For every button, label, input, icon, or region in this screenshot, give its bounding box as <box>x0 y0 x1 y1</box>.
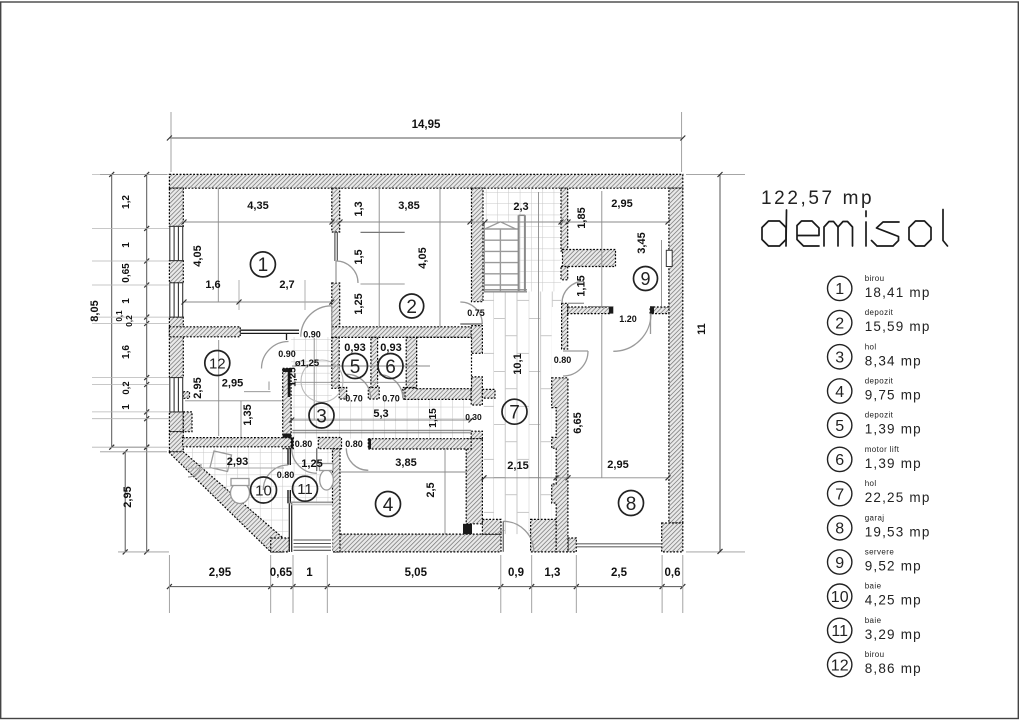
svg-text:4: 4 <box>835 384 844 401</box>
svg-text:8: 8 <box>626 494 637 515</box>
svg-text:1,3: 1,3 <box>353 201 365 216</box>
svg-text:depozit: depozit <box>865 411 894 420</box>
svg-text:2,5: 2,5 <box>425 482 437 497</box>
svg-text:0,65: 0,65 <box>121 263 132 283</box>
svg-text:5: 5 <box>350 357 361 378</box>
svg-text:2,5: 2,5 <box>611 567 628 579</box>
svg-text:12: 12 <box>831 657 849 674</box>
svg-text:0,93: 0,93 <box>344 342 365 354</box>
svg-text:0.80: 0.80 <box>295 439 313 449</box>
svg-text:0.80: 0.80 <box>554 355 572 365</box>
svg-text:depozit: depozit <box>865 377 894 386</box>
svg-text:birou: birou <box>865 274 885 283</box>
svg-text:3: 3 <box>316 406 327 427</box>
svg-text:servere: servere <box>865 548 895 557</box>
svg-text:1,39 mp: 1,39 mp <box>865 422 922 437</box>
svg-text:0.80: 0.80 <box>277 470 295 480</box>
svg-text:0,2: 0,2 <box>124 315 134 327</box>
svg-text:6,65: 6,65 <box>572 412 584 433</box>
svg-text:1,6: 1,6 <box>121 345 132 359</box>
svg-text:4: 4 <box>383 495 394 516</box>
svg-text:11: 11 <box>696 323 708 335</box>
svg-text:6: 6 <box>385 357 396 378</box>
svg-text:14,95: 14,95 <box>412 119 441 131</box>
svg-text:2,95: 2,95 <box>122 486 134 507</box>
svg-text:1,15: 1,15 <box>576 275 588 296</box>
svg-text:1: 1 <box>306 567 313 579</box>
svg-text:4,25 mp: 4,25 mp <box>865 593 922 608</box>
svg-text:0.30: 0.30 <box>465 412 482 422</box>
svg-text:1: 1 <box>835 281 844 298</box>
svg-text:0.75: 0.75 <box>467 308 485 318</box>
svg-text:0.90: 0.90 <box>278 349 296 359</box>
svg-text:hol: hol <box>865 342 877 351</box>
svg-text:1,25: 1,25 <box>288 367 299 387</box>
svg-text:8,05: 8,05 <box>89 300 101 321</box>
svg-text:11: 11 <box>297 481 313 498</box>
svg-text:6: 6 <box>835 452 844 469</box>
svg-text:8: 8 <box>835 521 844 538</box>
svg-text:1: 1 <box>121 298 132 304</box>
svg-text:0,65: 0,65 <box>270 567 293 579</box>
svg-text:9,52 mp: 9,52 mp <box>865 559 922 574</box>
svg-text:1: 1 <box>121 404 132 410</box>
svg-text:22,25 mp: 22,25 mp <box>865 490 931 505</box>
svg-text:1,25: 1,25 <box>353 293 365 314</box>
svg-text:2,15: 2,15 <box>507 460 528 472</box>
svg-text:10,1: 10,1 <box>512 353 524 374</box>
svg-text:0,6: 0,6 <box>665 567 681 579</box>
svg-text:0.70: 0.70 <box>345 394 363 404</box>
svg-text:motor lift: motor lift <box>865 445 900 454</box>
svg-text:1,15: 1,15 <box>428 408 439 428</box>
svg-text:3: 3 <box>835 350 844 367</box>
svg-text:garaj: garaj <box>865 513 885 522</box>
svg-text:1,35: 1,35 <box>242 404 254 425</box>
svg-text:11: 11 <box>831 623 848 640</box>
svg-text:baie: baie <box>865 582 882 591</box>
svg-text:7: 7 <box>835 486 844 503</box>
svg-text:9: 9 <box>835 555 844 572</box>
svg-text:8,34 mp: 8,34 mp <box>865 353 922 368</box>
svg-text:3,85: 3,85 <box>398 200 419 212</box>
svg-text:4,05: 4,05 <box>417 247 429 268</box>
svg-text:2,3: 2,3 <box>513 201 528 213</box>
svg-text:hol: hol <box>865 479 877 488</box>
svg-text:122,57 mp: 122,57 mp <box>761 188 874 209</box>
svg-text:depozit: depozit <box>865 308 894 317</box>
svg-text:18,41 mp: 18,41 mp <box>865 285 931 300</box>
svg-text:5: 5 <box>835 418 844 435</box>
svg-text:1,3: 1,3 <box>544 567 560 579</box>
svg-text:0,2: 0,2 <box>121 381 132 394</box>
svg-text:ø1,25: ø1,25 <box>295 358 320 369</box>
svg-text:3,45: 3,45 <box>636 232 648 253</box>
svg-text:3,29 mp: 3,29 mp <box>865 627 922 642</box>
svg-text:1.20: 1.20 <box>619 314 637 324</box>
svg-text:12: 12 <box>209 355 226 372</box>
svg-text:0.80: 0.80 <box>345 439 363 449</box>
svg-text:2: 2 <box>835 315 844 332</box>
svg-text:5,05: 5,05 <box>405 567 428 579</box>
svg-text:9: 9 <box>640 269 650 289</box>
svg-text:8,86 mp: 8,86 mp <box>865 661 922 676</box>
svg-text:1,25: 1,25 <box>301 458 322 470</box>
svg-text:15,59 mp: 15,59 mp <box>865 319 931 334</box>
svg-text:5,3: 5,3 <box>373 408 388 420</box>
svg-text:2,95: 2,95 <box>611 198 632 210</box>
svg-text:3,85: 3,85 <box>395 457 416 469</box>
svg-text:1,5: 1,5 <box>353 249 365 264</box>
svg-text:2,95: 2,95 <box>192 377 204 398</box>
svg-text:0,9: 0,9 <box>508 567 524 579</box>
svg-text:1,2: 1,2 <box>121 195 132 209</box>
svg-text:10: 10 <box>831 589 849 606</box>
svg-text:2,95: 2,95 <box>607 459 628 471</box>
svg-text:1,39 mp: 1,39 mp <box>865 456 922 471</box>
svg-text:2: 2 <box>406 297 417 318</box>
svg-text:4,05: 4,05 <box>192 245 204 266</box>
svg-text:10: 10 <box>255 482 272 499</box>
svg-text:0.90: 0.90 <box>303 330 321 340</box>
svg-text:1: 1 <box>121 242 132 248</box>
svg-text:0,93: 0,93 <box>380 342 401 354</box>
svg-text:2,7: 2,7 <box>279 279 294 291</box>
svg-text:baie: baie <box>865 616 882 625</box>
svg-text:2,95: 2,95 <box>222 378 243 390</box>
svg-text:19,53 mp: 19,53 mp <box>865 524 931 539</box>
svg-text:9,75 mp: 9,75 mp <box>865 388 922 403</box>
svg-text:1: 1 <box>258 255 269 276</box>
svg-text:1,85: 1,85 <box>576 207 588 228</box>
svg-text:4,35: 4,35 <box>247 200 268 212</box>
svg-text:0.70: 0.70 <box>382 394 400 404</box>
svg-text:birou: birou <box>865 650 885 659</box>
svg-text:7: 7 <box>509 403 520 424</box>
svg-text:2,95: 2,95 <box>209 567 232 579</box>
svg-text:2,93: 2,93 <box>227 456 248 468</box>
svg-text:1,6: 1,6 <box>205 279 220 291</box>
svg-text:0,1: 0,1 <box>115 310 124 322</box>
